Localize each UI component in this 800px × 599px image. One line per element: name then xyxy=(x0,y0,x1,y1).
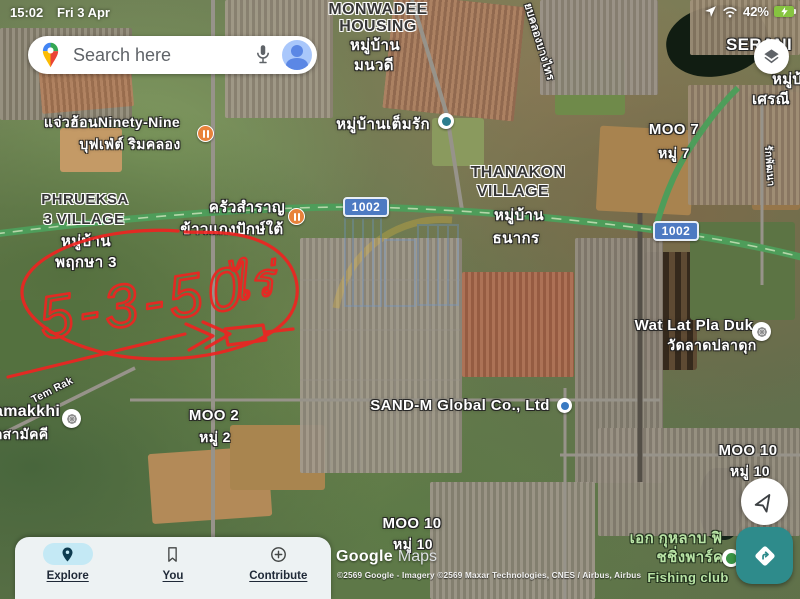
label-monwadee-th: หมู่บ้าน xyxy=(350,38,400,53)
label-moo7-en: MOO 7 xyxy=(649,122,699,137)
temple-icon[interactable] xyxy=(752,322,771,341)
label-samakkhi-en: amakkhi xyxy=(0,404,60,420)
search-input[interactable] xyxy=(71,44,254,67)
contribute-pill xyxy=(253,543,303,565)
temple-icon[interactable] xyxy=(62,409,81,428)
label-phrueksa-en: PHRUEKSA xyxy=(41,192,128,207)
explore-pill xyxy=(43,543,93,565)
label-fishing-en: Fishing club xyxy=(647,571,728,584)
layers-icon xyxy=(762,47,781,66)
label-thanakon-en: VILLAGE xyxy=(477,184,549,200)
label-ninety-nine: บุฟเฟ่ต์ ริมคลอง xyxy=(79,137,180,151)
label-phrueksa-th: หมู่บ้าน xyxy=(61,234,111,249)
label-thanakon-en: THANAKON xyxy=(471,165,566,181)
label-krua-samran: ครัวสำราญ xyxy=(209,200,285,215)
navigation-arrow-icon xyxy=(749,486,779,516)
map-canvas[interactable]: MONWADEE HOUSING หมู่บ้าน มนวดี SERANI ห… xyxy=(0,0,800,599)
place-marker-icon[interactable] xyxy=(557,398,572,413)
place-marker-icon[interactable] xyxy=(438,113,454,129)
mic-icon[interactable] xyxy=(254,43,272,67)
label-moo2-th: หมู่ 2 xyxy=(199,430,231,444)
plus-circle-icon xyxy=(270,546,287,563)
battery-icon xyxy=(774,6,796,17)
maps-pin-icon xyxy=(41,42,60,68)
directions-icon xyxy=(752,543,778,569)
label-serani-th: หมู่บ้าน xyxy=(772,72,800,87)
tab-you[interactable]: You xyxy=(120,537,225,599)
label-wat-en: Wat Lat Pla Duk xyxy=(635,318,754,333)
route-badge-1002: 1002 xyxy=(343,197,389,217)
label-temrak-village: หมู่บ้านเต็มรัก xyxy=(336,117,430,132)
label-ninety-nine: แจ่วฮ้อนNinety-Nine xyxy=(44,115,180,129)
directions-fab[interactable] xyxy=(736,527,793,584)
label-moo10-right-en: MOO 10 xyxy=(718,443,777,458)
tab-explore-label: Explore xyxy=(47,570,89,582)
bottom-navigation: Explore You Contribute xyxy=(15,537,331,599)
label-thanakon-th: ธนากร xyxy=(493,231,540,246)
label-monwadee-en: HOUSING xyxy=(339,19,416,35)
label-moo10-right-th: หมู่ 10 xyxy=(730,464,770,478)
road-label-phatthana: รักพัฒนา xyxy=(762,145,775,187)
status-icons: 42% xyxy=(704,4,796,19)
layers-button[interactable] xyxy=(754,39,789,74)
you-pill xyxy=(148,543,198,565)
label-monwadee-th: มนวดี xyxy=(354,58,394,73)
label-sandm: SAND-M Global Co., Ltd xyxy=(370,398,550,413)
bookmark-icon xyxy=(165,546,180,563)
tab-you-label: You xyxy=(163,570,184,582)
label-krua-samran: ข้าวแกงปักษ์ใต้ xyxy=(180,222,283,237)
label-thanakon-th: หมู่บ้าน xyxy=(494,208,544,223)
label-phrueksa-th: พฤกษา 3 xyxy=(55,255,117,270)
label-fishing-th: ชชิ่งพาร์ค xyxy=(657,550,724,565)
tab-contribute-label: Contribute xyxy=(249,570,307,582)
date: Fri 3 Apr xyxy=(57,5,110,20)
search-bar[interactable] xyxy=(28,36,317,74)
label-monwadee-en: MONWADEE xyxy=(328,2,427,18)
location-arrow-icon xyxy=(704,5,717,18)
label-moo7-th: หมู่ 7 xyxy=(658,146,690,160)
map-attribution: ©2569 Google - Imagery ©2569 Maxar Techn… xyxy=(337,571,641,580)
tab-contribute[interactable]: Contribute xyxy=(226,537,331,599)
restaurant-icon[interactable] xyxy=(288,208,305,225)
explore-pin-icon xyxy=(61,547,74,562)
wifi-icon xyxy=(722,5,738,18)
label-serani-th: เศรณี xyxy=(752,92,790,107)
route-badge-1002: 1002 xyxy=(653,221,699,241)
label-samakkhi-th: รักสามัคคี xyxy=(0,427,48,441)
battery-percent: 42% xyxy=(743,4,769,19)
label-moo2-en: MOO 2 xyxy=(189,408,239,423)
label-wat-th: วัดลาดปลาดุก xyxy=(667,338,756,352)
clock: 15:02 xyxy=(10,5,43,20)
account-avatar[interactable] xyxy=(282,40,312,70)
map-roads xyxy=(0,0,800,599)
label-fishing-th: เอก กุหลาบ ฟิ xyxy=(630,531,723,546)
label-moo10-bottom-en: MOO 10 xyxy=(382,516,441,531)
watermark xyxy=(336,218,458,308)
restaurant-icon[interactable] xyxy=(197,125,214,142)
compass-button[interactable] xyxy=(741,478,788,525)
tab-explore[interactable]: Explore xyxy=(15,537,120,599)
label-phrueksa-en: 3 VILLAGE xyxy=(43,212,124,227)
google-maps-logo: Google Maps xyxy=(336,548,437,566)
